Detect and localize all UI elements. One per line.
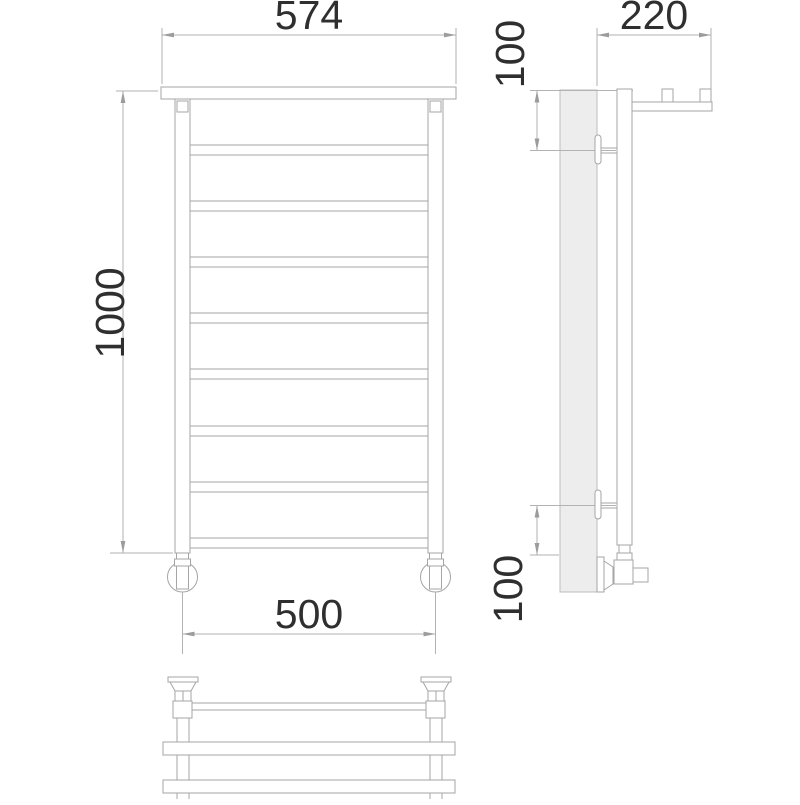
bottom-right-collector (426, 701, 445, 718)
rung (190, 145, 428, 155)
dim-height-label: 1000 (87, 267, 133, 358)
arrowhead (699, 33, 711, 38)
dim-depth: 220 (597, 0, 711, 98)
drawing-page: 1000 574 (0, 0, 800, 800)
front-rungs (190, 145, 428, 548)
dim-shelf-width-label: 574 (275, 0, 343, 38)
rung (190, 426, 428, 436)
arrowhead (121, 91, 126, 103)
side-bracket-upper (595, 135, 617, 164)
dim-shelf-width: 574 (162, 0, 456, 84)
arrowhead (121, 541, 126, 553)
arrowhead (597, 33, 609, 38)
arrowhead (162, 33, 174, 38)
rung (190, 369, 428, 379)
front-valve-left (168, 553, 198, 592)
dim-height: 1000 (87, 91, 173, 553)
side-valve (597, 545, 648, 592)
side-post (617, 89, 632, 545)
front-shelf (161, 87, 456, 99)
bottom-shelf-bar-2 (163, 780, 455, 793)
front-left-post (175, 99, 190, 553)
rung (190, 482, 428, 492)
arrowhead (535, 543, 540, 555)
side-shelf (632, 102, 712, 111)
side-view: 220 100 100 (485, 0, 712, 623)
front-right-post (428, 99, 443, 553)
rung (190, 538, 428, 548)
arrowhead (535, 91, 540, 103)
arrowhead (535, 506, 540, 518)
arrowhead (424, 632, 436, 637)
arrowhead (444, 33, 456, 38)
bottom-left-collector (173, 701, 192, 718)
rung (190, 257, 428, 267)
dim-bottom-offset-label: 100 (485, 555, 531, 623)
bottom-right-wall-mount (421, 677, 451, 701)
bottom-shelf-bar-1 (163, 742, 455, 755)
front-view: 1000 574 (87, 0, 456, 654)
bottom-rail (192, 703, 426, 710)
technical-drawing: 1000 574 (0, 0, 800, 800)
front-shelf-mount-left (177, 101, 188, 112)
side-wall (560, 90, 597, 592)
rung (190, 313, 428, 323)
dim-pipe-spacing: 500 (183, 591, 436, 654)
side-shelf-tube-1 (662, 89, 673, 102)
arrowhead (535, 139, 540, 151)
dim-top-offset-label: 100 (487, 20, 533, 88)
side-bracket-lower (595, 490, 617, 519)
front-shelf-mount-right (430, 101, 441, 112)
rung (190, 201, 428, 211)
side-shelf-tube-2 (700, 89, 711, 102)
bottom-left-wall-mount (168, 677, 198, 701)
front-valve-right (421, 553, 451, 592)
dim-pipe-spacing-label: 500 (275, 591, 343, 637)
arrowhead (183, 632, 195, 637)
bottom-view (163, 677, 455, 799)
dim-depth-label: 220 (620, 0, 688, 38)
